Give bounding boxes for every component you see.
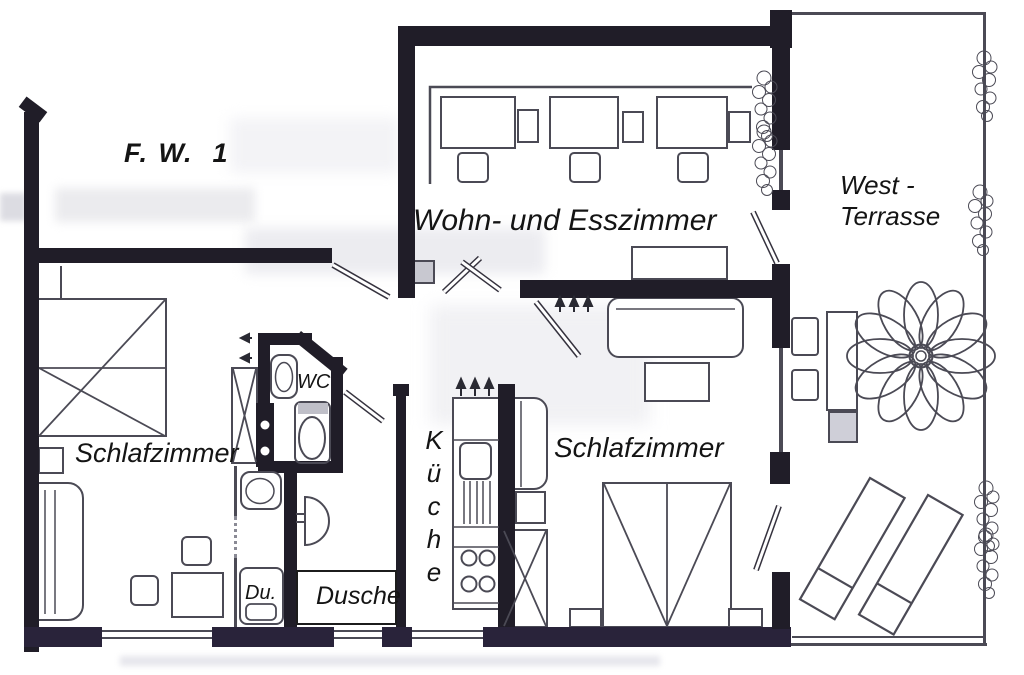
wall-segment bbox=[24, 112, 39, 652]
washbasin-icon bbox=[271, 355, 297, 398]
headboard-line bbox=[60, 266, 62, 298]
chair bbox=[181, 536, 212, 566]
kitchen-letter: K bbox=[425, 424, 442, 457]
dining-table bbox=[440, 96, 516, 149]
wall-segment bbox=[398, 26, 415, 298]
couch bbox=[33, 482, 84, 621]
window bbox=[779, 150, 783, 190]
wall-segment bbox=[520, 280, 782, 298]
radiator-ticks bbox=[241, 297, 592, 396]
paper-smudge bbox=[55, 188, 255, 222]
table-small bbox=[644, 362, 710, 402]
room-label-bedroom-left: Schlafzimmer bbox=[75, 438, 239, 469]
kitchen-letter: ü bbox=[427, 457, 441, 490]
wall-segment bbox=[258, 333, 270, 411]
wall-segment bbox=[770, 452, 790, 484]
wall-segment bbox=[772, 264, 790, 348]
chair bbox=[457, 152, 489, 183]
chair bbox=[728, 111, 751, 143]
drawer-unit bbox=[515, 491, 546, 524]
wall-segment bbox=[256, 403, 274, 467]
room-label-kitchen: K ü c h e bbox=[416, 424, 452, 589]
terrace-table bbox=[826, 311, 858, 411]
room-label-terrace-line1: West - bbox=[840, 170, 915, 201]
lounger-icon bbox=[800, 478, 905, 619]
terrace-border bbox=[983, 12, 986, 646]
wall-segment bbox=[24, 627, 102, 647]
kitchen-letter: c bbox=[428, 490, 441, 523]
chair bbox=[517, 109, 539, 143]
kitchen-letter: e bbox=[427, 556, 441, 589]
room-label-living: Wohn- und Esszimmer bbox=[413, 204, 716, 238]
wall-segment bbox=[772, 46, 790, 150]
chair bbox=[622, 111, 644, 143]
terrace-chair bbox=[791, 317, 819, 356]
wall-segment bbox=[30, 248, 332, 263]
sideboard bbox=[631, 246, 728, 280]
window bbox=[100, 630, 214, 632]
terrace-stool bbox=[828, 411, 858, 443]
bed-double-right bbox=[602, 482, 732, 628]
paper-smudge bbox=[0, 193, 26, 221]
room-label-dusche: Dusche bbox=[316, 582, 401, 611]
room-label-bedroom-right: Schlafzimmer bbox=[554, 432, 724, 464]
wall-segment bbox=[772, 190, 790, 210]
sofa bbox=[607, 297, 744, 358]
partition-wall bbox=[234, 558, 237, 627]
unit-label: F. W. 1 bbox=[124, 138, 230, 169]
window bbox=[332, 637, 384, 639]
wall-segment bbox=[772, 572, 790, 629]
bed-double-left bbox=[37, 298, 167, 437]
chair bbox=[569, 152, 601, 183]
washbasin-icon bbox=[296, 497, 329, 545]
wall-segment bbox=[212, 627, 334, 647]
paper-smudge bbox=[230, 118, 400, 173]
room-label-du: Du. bbox=[245, 582, 276, 605]
window bbox=[100, 637, 214, 639]
window bbox=[410, 637, 485, 639]
window bbox=[332, 630, 384, 632]
nightstand bbox=[728, 608, 763, 628]
kitchen-letter: h bbox=[427, 523, 441, 556]
wall-segment bbox=[258, 461, 343, 473]
room-label-wc: WC bbox=[297, 371, 330, 394]
dining-table bbox=[549, 96, 619, 149]
kitchen-counter bbox=[452, 397, 500, 610]
table-small bbox=[171, 572, 224, 618]
wall-segment bbox=[483, 627, 791, 647]
nightstand bbox=[569, 608, 602, 628]
nightstand bbox=[38, 447, 64, 474]
window bbox=[779, 348, 783, 452]
partition-wall bbox=[234, 466, 237, 516]
paper-smudge bbox=[120, 656, 660, 666]
chair bbox=[677, 152, 709, 183]
terrace-border bbox=[788, 643, 987, 646]
wall-segment bbox=[382, 627, 412, 647]
toilet-icon bbox=[295, 402, 330, 463]
wall-segment bbox=[770, 10, 792, 48]
chair bbox=[130, 575, 159, 606]
partition-door-dashes bbox=[234, 516, 237, 558]
room-label-terrace-line2: Terrasse bbox=[840, 201, 940, 232]
lounger-icon bbox=[859, 495, 963, 635]
terrace-chair bbox=[791, 369, 819, 401]
dining-table bbox=[656, 96, 728, 149]
wall-segment bbox=[398, 26, 772, 46]
terrace-border bbox=[788, 12, 986, 15]
window bbox=[410, 630, 485, 632]
washbasin-icon bbox=[241, 472, 281, 509]
dresser bbox=[513, 397, 548, 490]
wall-segment bbox=[393, 384, 409, 396]
wall-segment bbox=[498, 384, 515, 627]
parasol-icon bbox=[847, 282, 995, 430]
floorplan: F. W. 1 Wohn- und Esszimmer West - Terra… bbox=[0, 0, 1024, 675]
terrace-border bbox=[792, 636, 984, 638]
